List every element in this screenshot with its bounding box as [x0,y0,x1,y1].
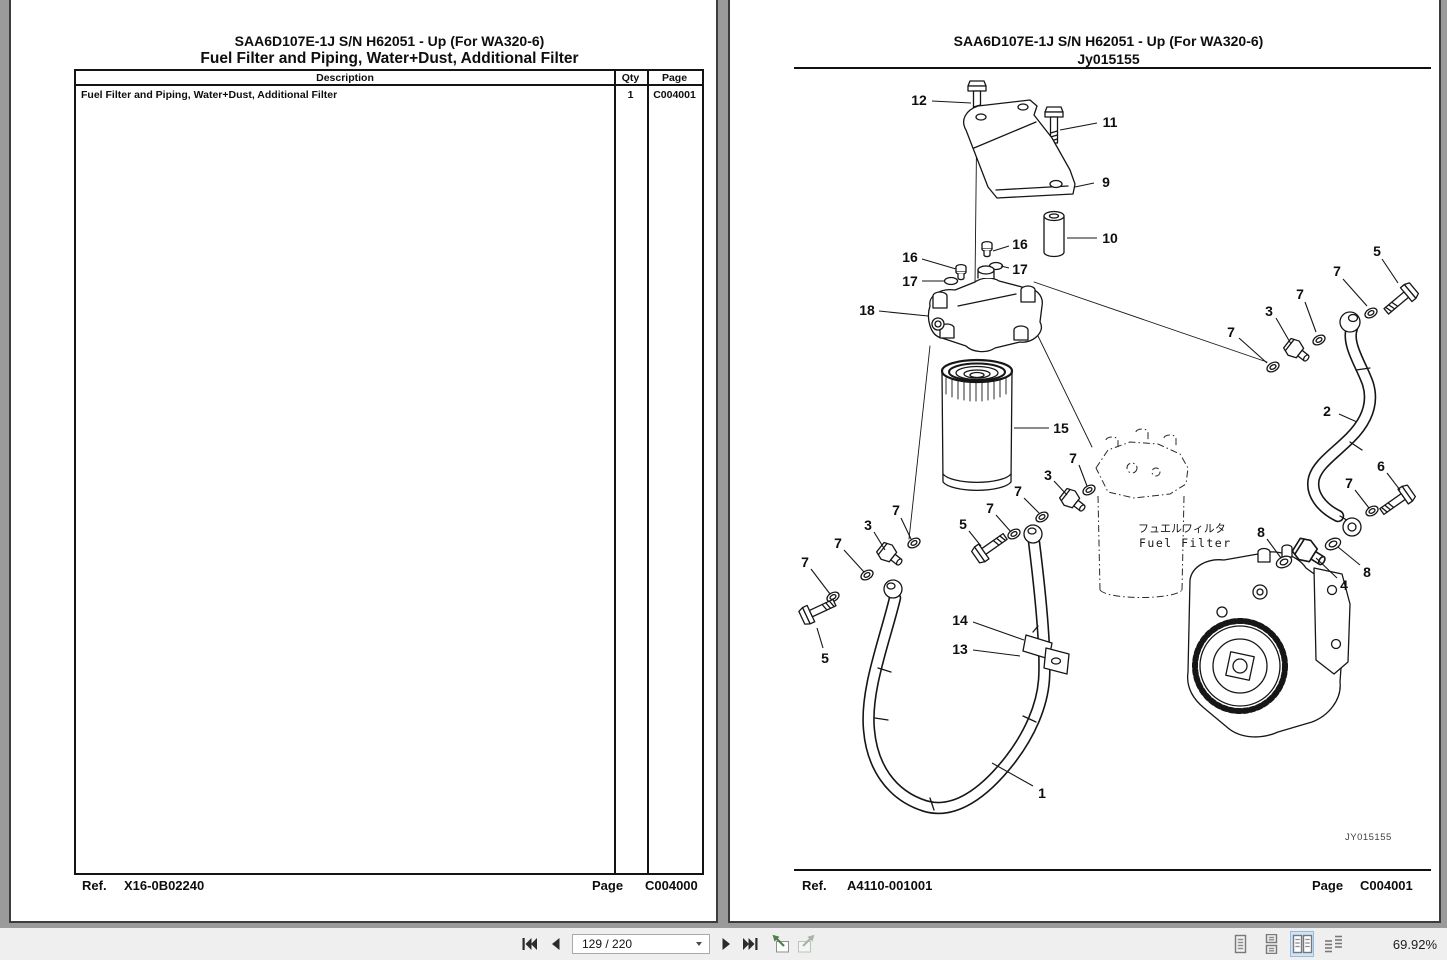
callout-label-16: 16 [902,249,918,265]
zoom-level: 69.92% [1383,937,1437,952]
callout-label-8: 8 [1257,524,1265,540]
callout-label-10: 10 [1102,230,1118,246]
callout-label-2: 2 [1323,403,1331,419]
callout-label-7: 7 [1296,286,1304,302]
hose-2 [1313,312,1370,536]
callout-leader-line [932,101,971,103]
ref-label: Ref. [802,878,827,893]
callout-label-7: 7 [801,554,809,570]
previous-view-button[interactable] [770,934,791,954]
footer-rule [794,869,1431,871]
callout-label-13: 13 [952,641,968,657]
page-layout-group: 69.92% [1229,928,1439,960]
next-page-button[interactable] [722,937,731,951]
callout-label-5: 5 [959,516,967,532]
page-navigation-group: 129 / 220 [522,928,817,960]
callout-label-8: 8 [1363,564,1371,580]
single-page-view-icon [1232,934,1249,954]
callout-label-3: 3 [1265,303,1273,319]
page-indicator: 129 / 220 [582,937,632,951]
callout-label-5: 5 [1373,243,1381,259]
callout-label-15: 15 [1053,420,1069,436]
exploded-parts-diagram: フュエルフィルタ Fuel Filter 1211910161716171815… [790,70,1435,830]
callout-label-7: 7 [892,502,900,518]
callout-label-7: 7 [834,535,842,551]
callout-label-9: 9 [1102,174,1110,190]
callout-label-14: 14 [952,612,968,628]
pdf-viewer-canvas: SAA6D107E-1J S/N H62051 - Up (For WA320-… [0,0,1447,926]
callout-leader-line [1054,481,1067,495]
callout-label-6: 6 [1377,458,1385,474]
callout-leader-line [844,550,864,572]
callout-leader-line [1338,547,1360,565]
callout-leader-line [1339,414,1357,422]
left-page-title: SAA6D107E-1J S/N H62051 - Up (For WA320-… [74,33,705,49]
table-row-description: Fuel Filter and Piping, Water+Dust, Addi… [81,89,611,101]
callout-leader-line [1343,279,1367,306]
fuel-filter-label-en: Fuel Filter [1139,536,1232,550]
ref-label: Ref. [82,878,107,893]
column-header-page: Page [647,72,702,84]
last-page-button[interactable] [743,937,758,951]
callout-leader-line [1075,183,1094,187]
callout-label-17: 17 [1012,261,1028,277]
fuel-filter-label-jp: フュエルフィルタ [1138,522,1226,535]
parts-table: Description Qty Page Fuel Filter and Pip… [74,69,704,875]
figure-code: JY015155 [1345,832,1392,843]
column-header-description: Description [76,72,614,84]
ref-value: A4110-001001 [847,878,932,893]
callout-leader-line [969,531,981,546]
left-page: SAA6D107E-1J S/N H62051 - Up (For WA320-… [9,0,718,923]
callout-label-4: 4 [1340,577,1348,593]
callout-label-7: 7 [1014,483,1022,499]
callout-label-7: 7 [1227,324,1235,340]
facing-view-icon [1292,934,1313,954]
previous-page-icon [551,937,560,951]
callout-leader-line [1382,259,1398,283]
first-page-icon [522,937,537,951]
right-page-title: SAA6D107E-1J S/N H62051 - Up (For WA320-… [793,33,1424,49]
filter-head [929,242,1043,352]
ref-value: X16-0B02240 [124,878,204,893]
previous-view-icon [770,934,791,954]
first-page-button[interactable] [522,937,537,951]
injection-pump [1188,545,1350,737]
callout-leader-line [993,246,1009,251]
table-header-divider [76,84,702,86]
table-column-divider [647,71,649,873]
table-row-page: C004001 [647,89,702,101]
callout-leader-line [1305,302,1316,332]
next-view-icon [796,934,817,954]
callout-leader-line [1276,318,1291,344]
callout-label-7: 7 [1333,263,1341,279]
callout-leader-line [1079,465,1087,486]
callout-label-16: 16 [1012,236,1028,252]
page-value: C004001 [1360,878,1413,893]
continuous-view-button[interactable] [1260,932,1282,956]
mounting-bracket [964,81,1075,257]
left-page-footer: Ref. X16-0B02240 Page C004000 [74,878,711,894]
header-rule [794,67,1431,69]
callout-leader-line [1387,473,1400,490]
callout-label-12: 12 [911,92,927,108]
filter-cartridge [942,360,1012,490]
left-page-subtitle: Fuel Filter and Piping, Water+Dust, Addi… [74,50,705,68]
page-number-input[interactable]: 129 / 220 [572,934,710,954]
callout-label-7: 7 [1069,450,1077,466]
callout-leader-line [901,518,911,539]
page-value: C004000 [645,878,698,893]
callout-label-18: 18 [859,302,875,318]
page-label: Page [1312,878,1343,893]
callout-label-11: 11 [1103,114,1118,130]
callout-leader-line [879,311,928,316]
single-page-view-button[interactable] [1229,932,1251,956]
callout-leader-line [811,569,830,594]
phantom-fuel-filter [1096,429,1188,598]
callout-leader-line [922,259,956,269]
callout-label-3: 3 [1044,467,1052,483]
callout-leader-line [973,650,1020,656]
spacer-part [1044,212,1064,257]
right-page: SAA6D107E-1J S/N H62051 - Up (For WA320-… [728,0,1441,923]
continuous-view-icon [1263,934,1280,954]
right-page-subtitle: Jy015155 [793,51,1424,67]
callout-leader-line [1060,123,1097,130]
next-view-button[interactable] [796,934,817,954]
callout-leader-line [973,622,1024,640]
continuous-facing-view-icon [1323,934,1344,954]
callout-label-3: 3 [864,517,872,533]
page-label: Page [592,878,623,893]
callout-leader-line [817,628,823,648]
previous-page-button[interactable] [551,937,560,951]
next-page-icon [722,937,731,951]
callout-label-7: 7 [1345,475,1353,491]
table-column-divider [614,71,616,873]
callout-leader-line [1355,490,1369,508]
continuous-facing-view-button[interactable] [1322,932,1344,956]
callout-label-17: 17 [902,273,918,289]
last-page-icon [743,937,758,951]
callout-label-5: 5 [821,650,829,666]
facing-view-button[interactable] [1291,932,1313,956]
table-row-qty: 1 [614,89,647,101]
callout-leader-line [1239,338,1267,363]
callout-leader-line [996,515,1011,532]
page-dropdown-caret-icon[interactable] [696,942,702,946]
column-header-qty: Qty [614,72,647,84]
status-bar: 129 / 220 [0,926,1447,960]
callout-label-7: 7 [986,500,994,516]
hose-1 [868,525,1044,810]
callout-label-1: 1 [1038,785,1046,801]
right-page-footer: Ref. A4110-001001 Page C004001 [793,878,1430,894]
callout-leader-line [1024,498,1039,513]
